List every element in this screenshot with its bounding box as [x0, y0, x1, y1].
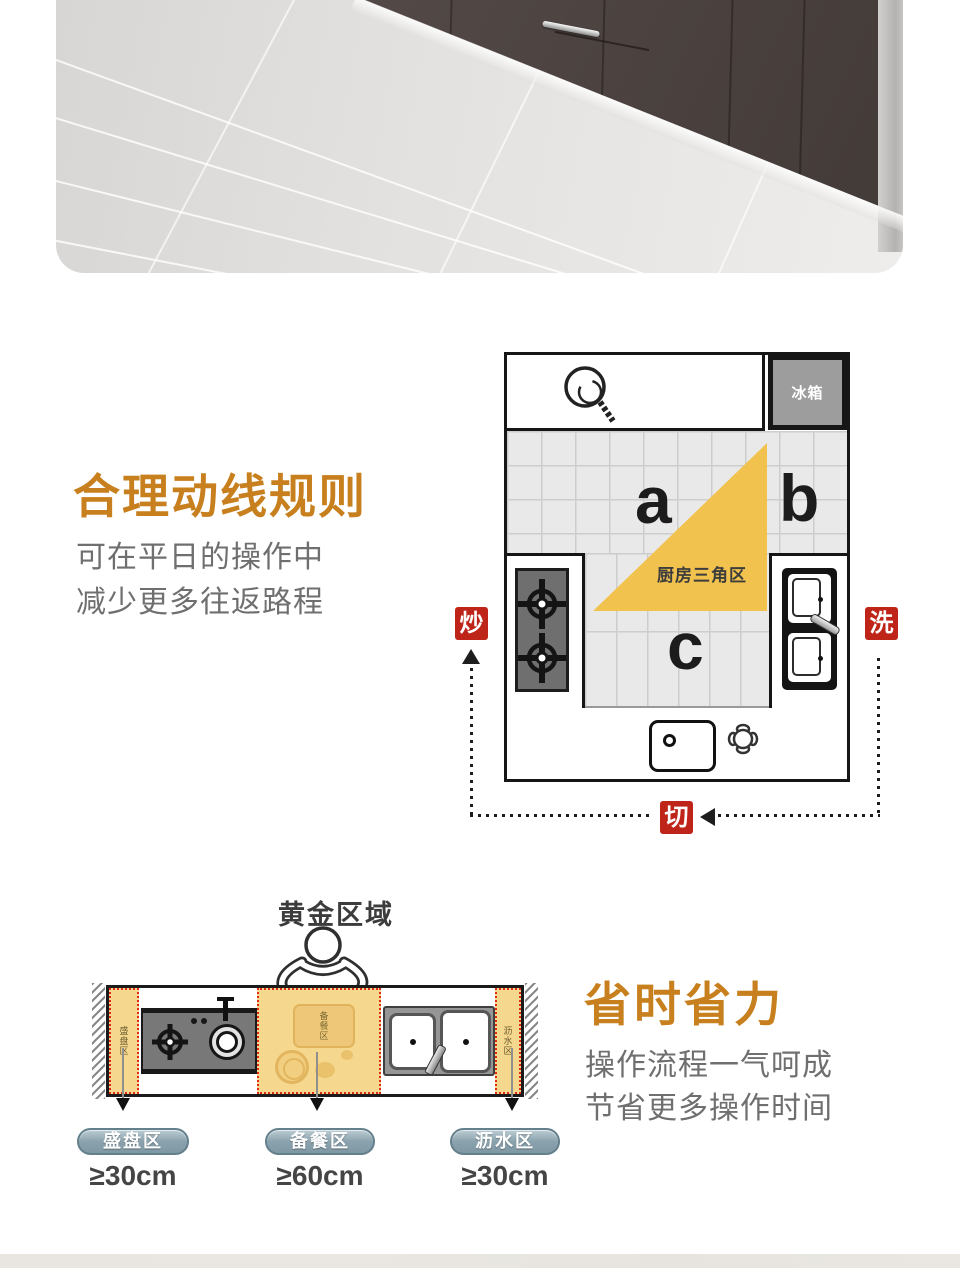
- cooktop-icon: [141, 1008, 257, 1074]
- triangle-label: 厨房三角区: [657, 561, 747, 586]
- flow-dotted-left: [470, 668, 473, 817]
- wall-hatch-left: [92, 983, 105, 1099]
- plate-inner: [283, 1058, 305, 1080]
- pan-inner: [216, 1031, 238, 1053]
- flow-arrow-up-icon: [462, 649, 480, 664]
- drain-dot: [463, 1039, 469, 1045]
- basin-inner-line: [792, 637, 821, 676]
- flow-subtitle-line1: 可在平日的操作中: [76, 532, 324, 576]
- pan-icon: [557, 363, 627, 427]
- basin-inner-line: [792, 578, 821, 617]
- stove-icon: [515, 568, 569, 692]
- badge-cut: 切: [660, 801, 693, 834]
- zone-drain: 沥水区: [495, 988, 521, 1094]
- zone-prep: 备餐区: [257, 988, 381, 1094]
- flow-dotted-right: [877, 658, 880, 817]
- kitchen-floorplan: 厨房三角区 冰箱: [504, 352, 850, 782]
- kitchen-photo: [56, 0, 903, 273]
- cabinet-run: [56, 0, 903, 273]
- zone-plating: 盛盘区: [109, 988, 139, 1094]
- zone-c-label: c: [667, 613, 704, 679]
- wall-hatch-right: [525, 983, 538, 1099]
- badge-stirfry: 炒: [455, 607, 488, 640]
- counter-strip-diagram: 盛盘区 备餐区: [106, 985, 524, 1097]
- floor-grout-line: [56, 170, 903, 273]
- burner-icon: [518, 571, 566, 689]
- cabinet-seam: [796, 0, 805, 273]
- zones-subtitle-line2: 节省更多操作时间: [585, 1083, 833, 1127]
- pointer-arrow-icon: [505, 1098, 519, 1111]
- pointer-arrow-icon: [310, 1098, 324, 1111]
- pointer-line: [511, 1048, 513, 1098]
- stove-counter: [507, 553, 585, 708]
- zone-b-label: b: [779, 465, 819, 531]
- plate-icon: [275, 1050, 309, 1084]
- zones-subtitle-line1: 操作流程一气呵成: [585, 1040, 833, 1084]
- measure-drain: ≥30cm: [450, 1160, 560, 1192]
- zones-title: 省时省力: [584, 966, 784, 1035]
- prep-cutting-board: 备餐区: [293, 1004, 355, 1048]
- measure-plating: ≥30cm: [77, 1160, 189, 1192]
- pan-handle-top: [217, 997, 234, 1001]
- board-hole: [663, 734, 676, 747]
- sink-basin-right: [440, 1010, 491, 1073]
- cooktop-knob: [201, 1018, 207, 1024]
- double-sink-icon: [383, 1006, 495, 1076]
- burner-icon: [152, 1024, 188, 1060]
- pill-prep: 备餐区: [265, 1128, 375, 1155]
- flow-subtitle-line2: 减少更多往返路程: [76, 577, 324, 621]
- badge-wash: 洗: [865, 607, 898, 640]
- flow-dotted-bottom-right: [718, 814, 880, 817]
- fridge-box: 冰箱: [768, 355, 847, 430]
- pan-on-stove-icon: [209, 1024, 245, 1060]
- fridge-label: 冰箱: [791, 382, 823, 403]
- drain-dot: [410, 1039, 416, 1045]
- sink-counter: [769, 553, 847, 708]
- food-item: [341, 1050, 353, 1060]
- cutting-board-icon: [649, 720, 716, 772]
- drain-dot: [818, 656, 823, 661]
- sink-basin-lower: [786, 631, 833, 684]
- zone-a-label: a: [635, 467, 672, 533]
- flow-title: 合理动线规则: [73, 458, 367, 527]
- drain-dot: [818, 597, 823, 602]
- cooktop-knob: [191, 1018, 197, 1024]
- stool-icon: [726, 723, 760, 755]
- pointer-line: [316, 1052, 318, 1098]
- food-item: [315, 1062, 335, 1078]
- pointer-arrow-icon: [116, 1098, 130, 1111]
- top-counter: [507, 355, 765, 431]
- sink-icon: [782, 568, 837, 690]
- pill-drain: 沥水区: [450, 1128, 560, 1155]
- flow-dotted-bottom-left: [470, 814, 650, 817]
- measure-prep: ≥60cm: [265, 1160, 375, 1192]
- pointer-line: [122, 1048, 124, 1098]
- flow-arrow-left-icon: [700, 808, 715, 826]
- floor-grout-line: [56, 232, 903, 273]
- cabinet-seam: [724, 0, 733, 273]
- pill-plating: 盛盘区: [77, 1128, 189, 1155]
- next-section-preview: [0, 1254, 960, 1268]
- zone-prep-label: 备餐区: [318, 1011, 331, 1041]
- zone-plating-label: 盛盘区: [118, 1026, 131, 1056]
